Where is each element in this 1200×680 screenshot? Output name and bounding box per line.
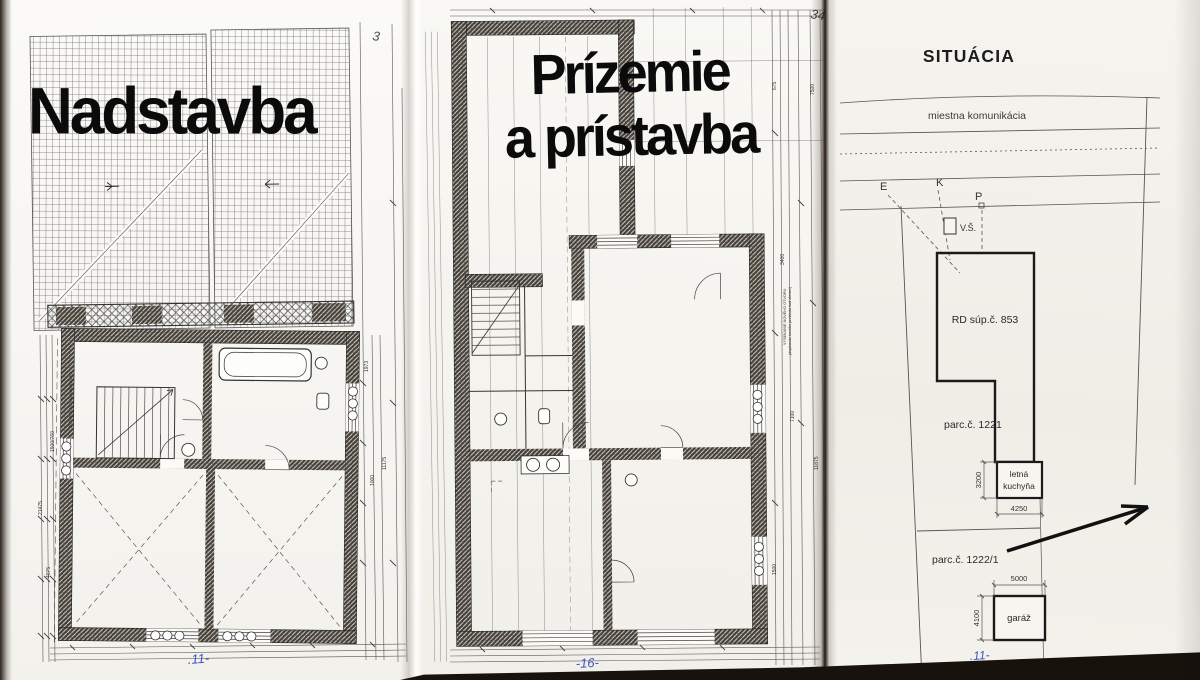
wall-pier [224, 304, 254, 322]
door-gap [572, 300, 585, 325]
wall-right [343, 331, 359, 643]
door-gap [661, 448, 683, 460]
sink [547, 458, 560, 471]
wall-partition-upper [202, 343, 212, 459]
interior-partitions [469, 286, 573, 449]
handwritten-blue-mark: .11- [187, 650, 210, 667]
kitchen-outline [997, 462, 1042, 498]
staircase [96, 387, 175, 459]
dim-label: 1973 [364, 361, 370, 372]
wall-bottom [58, 627, 356, 643]
dim-label: 1500/760 [50, 431, 56, 452]
wall-pier [312, 303, 346, 321]
door-gap [265, 460, 289, 470]
handwritten-page-number: 3 [372, 28, 382, 44]
prizemie-title-line1: Prízemie [428, 38, 831, 110]
dim-label: 3400 [780, 254, 786, 265]
wall-mid [470, 447, 751, 461]
stove-symbol [625, 474, 637, 486]
house-label: RD súp.č. 853 [952, 314, 1019, 326]
parcel2-label: parc.č. 1222/1 [932, 554, 999, 566]
sink [527, 458, 540, 471]
shaft-symbol [944, 218, 956, 234]
situacia-title: SITUÁCIA [923, 45, 1015, 66]
road-edge [840, 96, 1160, 103]
wall-partition-lower [602, 460, 612, 630]
washbasin [495, 413, 507, 425]
marker-p-symbol [979, 203, 984, 208]
boundary-cross [917, 528, 1040, 531]
construction-note-line1: VYSEKANIE NOVÉHO OTVORU [782, 288, 787, 345]
page-seam-2-3 [811, 0, 837, 680]
road-edge [840, 128, 1160, 134]
dim-label: 4075 [46, 567, 52, 578]
boundary-left [901, 206, 922, 680]
scanned-floorplan-sheet: 21475 1500/760 4075 1973 11175 1000 ŽB P… [0, 0, 1200, 680]
boundary-right [1135, 97, 1147, 485]
wall-partition-lower [204, 469, 215, 629]
nadstavba-floorplan [54, 328, 359, 646]
garage-width-dim: 5000 [1011, 574, 1028, 583]
handwritten-blue-mark: -16- [575, 655, 600, 671]
wall-partition-vertical [571, 248, 586, 448]
dim-label: 21475 [38, 501, 44, 515]
page-seam-1-2 [401, 0, 423, 680]
shaft-label: V.Š. [960, 223, 976, 233]
boundary-strip [1040, 498, 1044, 680]
utility-markers: E K P V.Š. [880, 177, 984, 273]
construction-note: ŽB PREKLAD (nad schodiskom) [68, 373, 73, 428]
dim-label: 1500 [772, 564, 778, 575]
door-gap [160, 458, 184, 468]
kitchen-label-line1: letná [1010, 469, 1029, 479]
nadstavba-title: Nadstavba [28, 74, 315, 149]
road-edge [840, 202, 1160, 210]
wall-mid [73, 458, 345, 471]
dim-label: 7100 [790, 411, 796, 422]
garage: garáž 5000 4100 [972, 574, 1047, 642]
scan-edge-left [0, 0, 12, 680]
fixtures [495, 408, 638, 487]
garage-depth-dim: 4100 [972, 610, 981, 627]
scan-shade-right [1174, 0, 1200, 680]
toilet [539, 409, 550, 424]
wall-pier [56, 307, 86, 325]
construction-note-line2: (doplnenie nového prekladu nad oknom) [788, 286, 792, 355]
wall-bottom [457, 629, 768, 647]
dim-label: 1000 [370, 475, 376, 486]
dim-label: 11175 [382, 457, 388, 470]
road-edge [840, 174, 1160, 181]
dimension-ticks-right [360, 200, 396, 566]
dashed-detail [491, 481, 503, 493]
summer-kitchen: letná kuchyňa 3200 4250 [974, 460, 1044, 518]
situacia-drawing: SITUÁCIA miestna komunikácia E K [832, 0, 1200, 680]
wall-top-old-house [465, 274, 542, 288]
toilet [317, 393, 329, 409]
kitchen-label-line2: kuchyňa [1003, 481, 1035, 491]
road-label: miestna komunikácia [928, 110, 1026, 122]
prizemie-title-line2: a prístavba [429, 101, 832, 173]
parcel1-label: parc.č. 1221 [944, 419, 1002, 431]
washbasin [315, 357, 327, 369]
kitchen-depth-dim: 3200 [974, 472, 983, 489]
wall-pier [132, 306, 162, 324]
road-centerline [840, 148, 1160, 154]
marker-e-label: E [880, 181, 887, 193]
eaves-wall-band [48, 301, 354, 327]
bathtub-inner [224, 352, 306, 377]
garage-label: garáž [1007, 613, 1031, 624]
wall-top [61, 328, 359, 344]
axis-dashed-line [54, 338, 57, 643]
marker-k-label: K [936, 177, 944, 189]
prizemie-title: Prízemie a prístavba [428, 38, 833, 173]
staircase [471, 281, 520, 355]
page-situacia: SITUÁCIA miestna komunikácia E K [832, 0, 1200, 680]
marker-p-label: P [975, 191, 982, 203]
washbasin [182, 443, 195, 456]
courtyard-wall-top [451, 20, 634, 36]
kitchen-width-dim: 4250 [1011, 504, 1028, 513]
